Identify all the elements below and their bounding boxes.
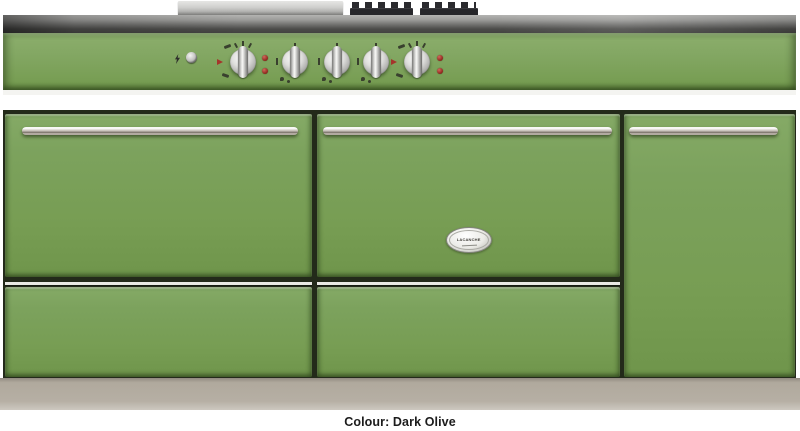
storage-drawer-middle [317, 287, 620, 377]
oven-thermostat-knob-right [404, 49, 430, 75]
drawer-gap-highlight [317, 282, 620, 285]
thermostat-tick [234, 43, 238, 48]
oven-body: LACANCHE [3, 110, 796, 378]
thermostat-tick [248, 43, 252, 48]
burner-off-mark [357, 58, 359, 65]
flame-icon [322, 77, 326, 81]
control-panel [3, 33, 796, 90]
ignition-button [186, 52, 197, 63]
door-handle-middle [323, 127, 612, 135]
oven-door-right [624, 114, 795, 377]
worktop-front-trim [3, 95, 796, 110]
flame-icon [287, 80, 290, 83]
worktop-rear-trim [3, 15, 796, 33]
indicator-light [437, 68, 443, 74]
burner-control-knob-1 [282, 49, 308, 75]
thermostat-tick [408, 43, 412, 48]
thermostat-max-mark [224, 44, 232, 49]
lacanche-badge: LACANCHE [446, 227, 492, 253]
plinth [0, 378, 800, 410]
oven-thermostat-knob-left [230, 49, 256, 75]
oven-door-left [5, 114, 312, 277]
thermostat-min-mark [396, 73, 404, 78]
storage-drawer-left [5, 287, 312, 377]
product-photo-stage: LACANCHE Colour: Dark Olive [0, 0, 800, 431]
red-pointer-icon [391, 59, 397, 65]
thermostat-max-mark [398, 44, 406, 49]
flame-icon [329, 80, 332, 83]
indicator-light [262, 68, 268, 74]
flame-icon [280, 77, 284, 81]
flame-icon [368, 80, 371, 83]
colour-caption: Colour: Dark Olive [0, 414, 800, 431]
burner-off-mark [318, 58, 320, 65]
badge-brand-text: LACANCHE [457, 238, 481, 242]
spark-icon [174, 54, 181, 64]
door-handle-right [629, 127, 778, 135]
burner-control-knob-2 [324, 49, 350, 75]
red-pointer-icon [217, 59, 223, 65]
door-handle-left [22, 127, 298, 135]
indicator-light [437, 55, 443, 61]
indicator-light [262, 55, 268, 61]
thermostat-tick [422, 43, 426, 48]
thermostat-min-mark [222, 73, 230, 78]
flame-icon [361, 77, 365, 81]
badge-script-line [461, 244, 476, 246]
burner-off-mark [276, 58, 278, 65]
drawer-gap-highlight [5, 282, 312, 285]
burner-control-knob-3 [363, 49, 389, 75]
